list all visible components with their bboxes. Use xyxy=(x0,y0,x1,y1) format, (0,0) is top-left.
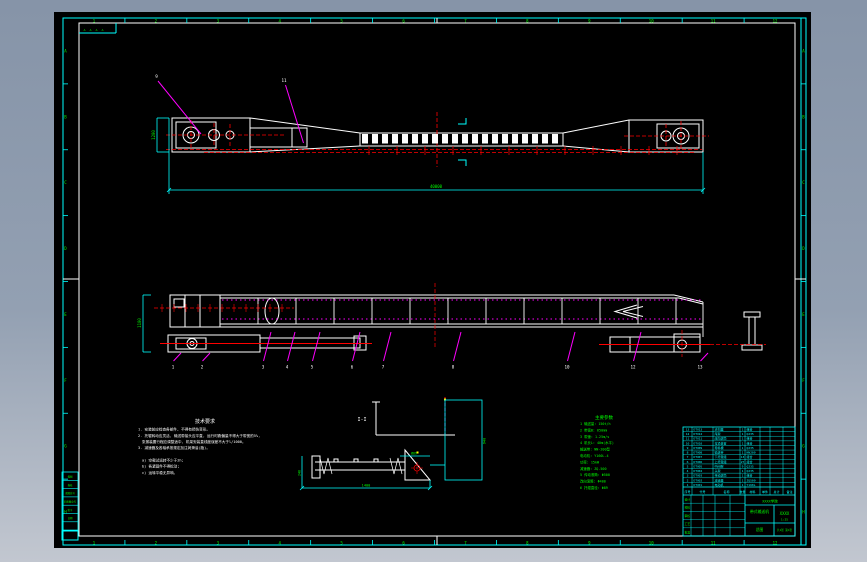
bom-cell-code: DTⅡ08 xyxy=(694,451,703,455)
bom-cell-seq: 3 xyxy=(687,474,689,478)
belt-slat xyxy=(382,134,388,144)
balloon-leader xyxy=(286,85,304,143)
zone-label-top: 12 xyxy=(773,18,778,23)
bom-cell-code: DTⅡ11 xyxy=(694,437,703,441)
bom-cell-seq: 7 xyxy=(687,455,689,459)
head-detail xyxy=(174,299,184,307)
bom-cell-name: 拉紧装置 xyxy=(715,440,727,445)
notes-title: 技术要求 xyxy=(195,418,215,425)
section-dim-right: 940 xyxy=(483,438,487,445)
balloon-leader xyxy=(264,332,272,361)
bom-cell-qty: 9 xyxy=(742,464,744,468)
drawing-canvas: ▵ ▵ ▵ ▵ xyxy=(54,12,811,548)
belt-slat xyxy=(452,134,458,144)
zone-label-left: C xyxy=(64,180,67,185)
zone-label-right: E xyxy=(802,312,805,317)
bom-cell-material: 组合 xyxy=(747,473,753,478)
zone-label-right: F xyxy=(802,378,805,383)
params-title: 主要参数 xyxy=(595,414,613,421)
bom-cell-code: DTⅡ03 xyxy=(694,474,703,478)
balloon-leader xyxy=(288,332,296,361)
bom-cell-seq: 12 xyxy=(686,432,690,436)
bom-cell-qty: 1 xyxy=(742,432,744,436)
sign-row-label: 审核 xyxy=(685,514,691,518)
tail-post-cap xyxy=(744,312,760,317)
left-strip-row: 底图总号 xyxy=(65,491,75,495)
belt-slat xyxy=(482,134,488,144)
top-view-dimensions xyxy=(157,118,705,194)
member-end-plate xyxy=(312,456,320,478)
balloon-leader xyxy=(384,332,392,361)
section-mark xyxy=(458,160,466,166)
bom-cell-name: 下托辊组 xyxy=(715,454,727,459)
section-label: I-I xyxy=(357,417,366,423)
dim-height-label: 1100 xyxy=(137,318,142,328)
bom-cell-material: 组合 xyxy=(747,427,753,432)
zone-label-right: G xyxy=(802,444,805,449)
belt-slat xyxy=(502,134,508,144)
param-line: 3 带速: 1.25m/s xyxy=(580,434,609,439)
bom-cell-qty: 1 xyxy=(742,446,744,450)
param-line: 1 输送量: 150t/h xyxy=(580,421,611,426)
dim-box xyxy=(445,400,482,480)
bom-cell-name: 上托辊组 xyxy=(715,459,727,464)
belt-slat xyxy=(412,134,418,144)
sign-row-label: 批准 xyxy=(685,530,691,534)
drive-arm xyxy=(260,338,360,348)
zone-label-right: A xyxy=(802,48,805,53)
taper-line xyxy=(563,146,629,152)
balloon-leader xyxy=(701,353,709,361)
balloon-label: 8 xyxy=(452,365,455,370)
cad-sheet: ▵ ▵ ▵ ▵ xyxy=(54,12,811,548)
section-view-dimensions xyxy=(300,400,482,490)
bom-cell-qty: 1 xyxy=(742,469,744,473)
belt-slat xyxy=(432,134,438,144)
belt-slat xyxy=(422,134,428,144)
bom-cell-name: 清扫器 xyxy=(715,427,724,432)
belt-slat xyxy=(362,134,368,144)
bom-cell-qty: 1 xyxy=(742,428,744,432)
param-line: 功率: 15kW xyxy=(580,459,600,464)
bom-cell-code: DTⅡ02 xyxy=(694,478,703,482)
zone-label-right: D xyxy=(802,246,805,251)
belt-slat xyxy=(542,134,548,144)
bom-cell-material: Q235 xyxy=(747,464,754,468)
balloon-leader xyxy=(174,353,182,361)
left-strip-row: 旧底图总号 xyxy=(64,500,77,504)
bom-cell-name: 减速器 xyxy=(715,477,724,482)
zone-label-left: B xyxy=(64,114,67,119)
balloon-label: 4 xyxy=(286,365,289,370)
belt-slat xyxy=(492,134,498,144)
hatch-mark xyxy=(390,458,402,474)
hatch-mark xyxy=(320,458,332,474)
belt-slat xyxy=(372,134,378,144)
bom-cell-name: 电动机 xyxy=(715,482,724,487)
bom-cell-seq: 5 xyxy=(687,464,689,468)
bom-cell-material: Q235 xyxy=(747,432,754,436)
bom-cell-name: 改向滚筒 xyxy=(715,436,727,441)
bom-cell-seq: 8 xyxy=(687,451,689,455)
zone-label-bottom: 10 xyxy=(649,540,654,545)
bom-cell-material: 组合 xyxy=(747,454,753,459)
bom-header: 备注 xyxy=(786,489,792,494)
balloon-leader xyxy=(568,332,576,361)
bom-header: 序号 xyxy=(684,489,690,494)
bom-cell-code: DTⅡ05 xyxy=(694,464,703,468)
bom-cell-code: DTⅡ04 xyxy=(694,469,703,473)
tail-post xyxy=(749,317,755,345)
balloon-leader xyxy=(634,332,642,361)
bom-cell-code: DTⅡ09 xyxy=(694,446,703,450)
snub-pulley xyxy=(265,298,279,324)
corner-box xyxy=(62,531,78,540)
scale-value: 1:25 xyxy=(781,518,788,522)
bom-cell-seq: 9 xyxy=(687,446,689,450)
left-strip-row: 日期 xyxy=(68,516,73,520)
zone-label-bottom: 11 xyxy=(711,540,716,545)
bom-cell-code: DTⅡ01 xyxy=(694,483,703,487)
section-mark xyxy=(458,118,466,124)
bom-cell-material: NN200 xyxy=(747,451,756,455)
bom-cell-code: DTⅡ07 xyxy=(694,455,703,459)
note-line: 3. 减速器及各轴承按规定加注润滑油(脂)。 xyxy=(138,445,210,450)
side-view-dimension xyxy=(143,295,151,352)
balloon-label: 7 xyxy=(382,365,385,370)
zone-label-right: H xyxy=(802,510,805,515)
balloon-label: 12 xyxy=(630,365,636,370)
bom-cell-seq: 11 xyxy=(686,437,690,441)
sheet-count: 共1张 第1张 xyxy=(777,528,792,532)
balloon-label: 2 xyxy=(201,365,204,370)
belt-slat xyxy=(392,134,398,144)
zone-label-top: 10 xyxy=(649,18,654,23)
bom-cell-name: 头架 xyxy=(715,468,721,473)
sign-row-label: 工艺 xyxy=(685,522,691,526)
bom-cell-material: 组合 xyxy=(747,436,753,441)
notes-block: 技术要求 xyxy=(195,418,215,425)
param-line: 输送带: NN-200型 xyxy=(580,447,611,452)
balloon-label: 10 xyxy=(564,365,570,370)
zone-label-right: B xyxy=(802,114,805,119)
zone-label-left: G xyxy=(64,444,67,449)
taper-line xyxy=(250,118,360,133)
belt-direction-arrow xyxy=(615,305,637,318)
bom-cell-material: Q235 xyxy=(747,469,754,473)
note-line: 2. 托辊转动应灵活, 输送带接头应平直, 运行时跑偏量不得大于带宽的5%, xyxy=(138,433,260,438)
balloon-leader xyxy=(158,81,201,134)
balloon-leader xyxy=(454,332,462,361)
belt-slat xyxy=(472,134,478,144)
param-line: 2 带宽B: 650mm xyxy=(580,427,607,432)
balloon-label: 3 xyxy=(262,365,265,370)
left-strip-row: 描校 xyxy=(68,483,73,487)
drawing-subtitle: 总图 xyxy=(756,527,764,532)
sign-row-label: 校核 xyxy=(685,506,691,510)
dim-width-label: 1200 xyxy=(151,130,156,140)
bom-cell-seq: 2 xyxy=(687,478,689,482)
member-bump xyxy=(354,459,358,462)
bom-cell-name: 导料槽 xyxy=(715,445,724,450)
note-line: 1. 安装前应检查各部件, 不得有损伤变形。 xyxy=(138,427,210,432)
bom-cell-code: DTⅡ10 xyxy=(694,441,703,445)
bom-cell-material: 组合 xyxy=(747,440,753,445)
bom-cell-qty: 1 xyxy=(742,437,744,441)
param-line: 6 托辊直径: Φ89 xyxy=(580,485,608,490)
section-dim-left: 240 xyxy=(298,470,302,476)
param-line: 4 机长L: 40m(水平) xyxy=(580,440,614,445)
belt-slat xyxy=(522,134,528,144)
taper-line xyxy=(563,120,629,133)
belt-slat xyxy=(462,134,468,144)
balloon-label: 1 xyxy=(172,365,175,370)
bom-cell-code: DTⅡ06 xyxy=(694,460,703,464)
belt-slat xyxy=(512,134,518,144)
balloon-leader xyxy=(313,332,321,361)
bom-cell-qty: 1 xyxy=(742,474,744,478)
bom-header: 总计 xyxy=(773,489,779,494)
bom-cell-name: 传动滚筒 xyxy=(715,473,727,478)
param-line: 改向滚筒: Φ400 xyxy=(580,479,606,484)
bom-cell-name: 尾架 xyxy=(715,431,721,436)
bom-cell-qty: 1 xyxy=(742,478,744,482)
note-line: 张紧装置行程应调整适中, 机架安装直线度误差不大于l/1000。 xyxy=(142,439,246,444)
bom-cell-seq: 1 xyxy=(687,483,689,487)
balloon-label: 6 xyxy=(351,365,354,370)
bom-cell-material: Q235 xyxy=(747,446,754,450)
bom-cell-name: 中间架 xyxy=(715,463,724,468)
param-line: 减速器: ZQ-500 xyxy=(580,466,607,471)
balloon-label: 13 xyxy=(697,365,703,370)
param-line: 电动机: Y160L-4 xyxy=(580,453,609,458)
note-line: b) 各紧固件不得松动; xyxy=(142,464,179,469)
bom-cell-seq: 6 xyxy=(687,460,689,464)
zone-label-top: 11 xyxy=(711,18,716,23)
left-strip-row: 描图 xyxy=(68,475,73,479)
belt-slat xyxy=(442,134,448,144)
bom-header: 材料 xyxy=(749,489,755,494)
bom-cell-qty: 1 xyxy=(742,441,744,445)
bom-cell-material: Y160L xyxy=(747,483,756,487)
bom-header: 数量 xyxy=(739,489,745,494)
section-dim-bottom: 1400 xyxy=(362,484,371,488)
balloon-label: 9 xyxy=(155,74,158,79)
left-strip-row: 签字 xyxy=(68,508,73,512)
drawing-number: XXXX xyxy=(780,511,790,516)
bom-cell-code: DTⅡ13 xyxy=(694,428,703,432)
head-frame xyxy=(170,295,220,327)
bom-cell-seq: 10 xyxy=(686,441,690,445)
revision-marks: ▵ ▵ ▵ ▵ xyxy=(83,27,104,33)
dim-total-label: 40000 xyxy=(430,184,443,189)
member-bump xyxy=(334,459,338,462)
belt-slat xyxy=(532,134,538,144)
balloon-leader xyxy=(203,353,211,361)
param-line: 5 传动滚筒: Φ500 xyxy=(580,472,610,477)
belt-slat xyxy=(402,134,408,144)
bom-cell-material: ZQ500 xyxy=(747,478,756,482)
section-dim-small: Ø89 xyxy=(411,451,417,456)
bom-cell-qty: 1 xyxy=(742,451,744,455)
bom-cell-seq: 13 xyxy=(686,428,690,432)
zone-label-left: A xyxy=(64,48,67,53)
bom-header: 代号 xyxy=(699,489,705,494)
bom-cell-name: 输送带 xyxy=(715,450,724,455)
params-block: 主要参数 xyxy=(595,414,613,421)
zone-label-left: F xyxy=(64,378,67,383)
bom-cell-qty: 13 xyxy=(741,455,745,459)
zone-label-right: C xyxy=(802,180,805,185)
motor-block xyxy=(250,128,307,147)
note-line: c) 运转平稳无异响。 xyxy=(142,470,177,475)
bom-cell-material: 组合 xyxy=(747,459,753,464)
belt-slat xyxy=(552,134,558,144)
note-line: a) 空载试运转不少于2h; xyxy=(142,458,184,463)
zone-label-bottom: 12 xyxy=(773,540,778,545)
balloon-label: 5 xyxy=(311,365,314,370)
org-name: XXXX学院 xyxy=(762,499,778,504)
zone-label-left: D xyxy=(64,246,67,251)
bom-cell-qty: 1 xyxy=(742,483,744,487)
section-view xyxy=(312,402,455,480)
drawing-title: 带式输送机 xyxy=(750,509,769,514)
zone-label-left: E xyxy=(64,312,67,317)
balloon-label: 11 xyxy=(281,78,287,83)
bom-cell-code: DTⅡ12 xyxy=(694,432,703,436)
sign-row-label: 设计 xyxy=(685,498,691,502)
bom-cell-qty: 27 xyxy=(741,460,745,464)
member-bump xyxy=(374,459,378,462)
bom-cell-seq: 4 xyxy=(687,469,689,473)
bom-header: 单件 xyxy=(762,489,768,494)
tail-post-base xyxy=(742,345,762,350)
bom-header: 名称 xyxy=(723,489,729,494)
